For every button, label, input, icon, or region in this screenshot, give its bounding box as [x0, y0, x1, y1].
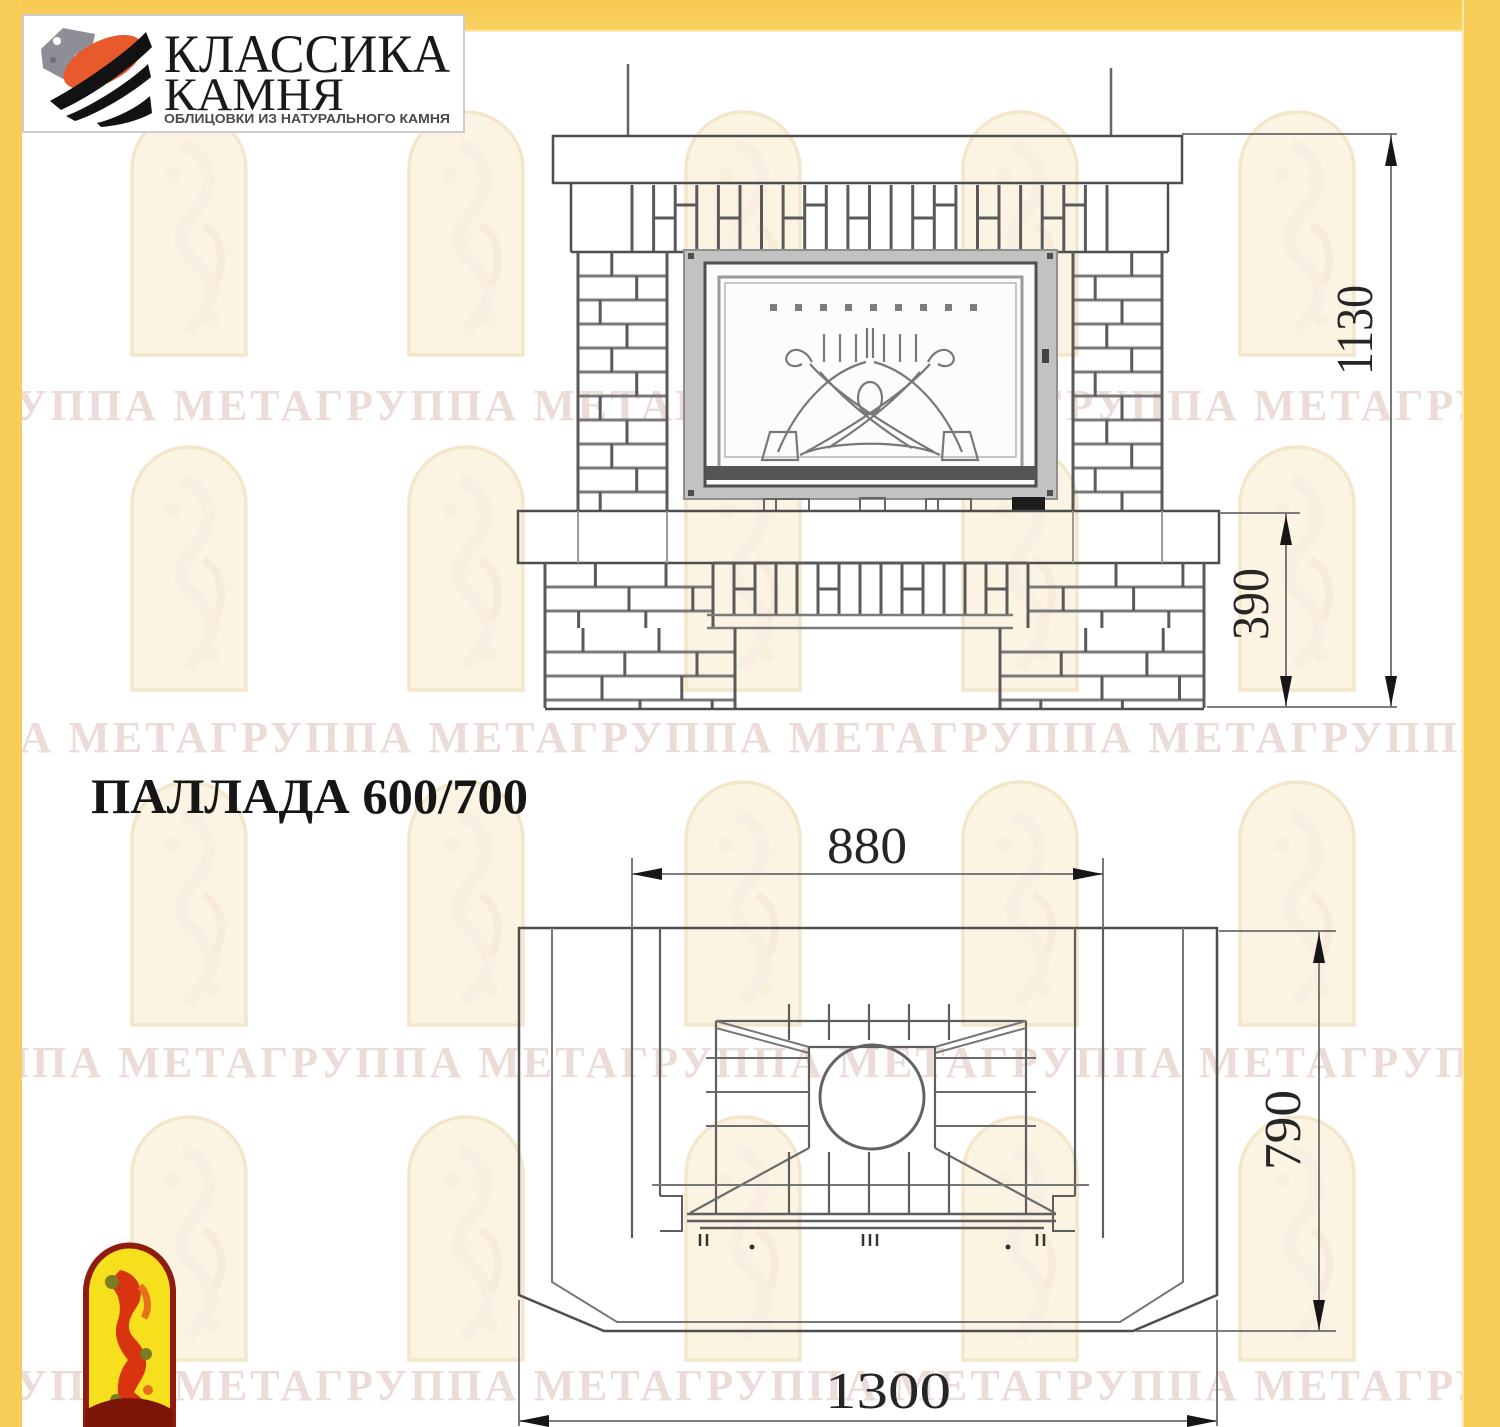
- svg-text:390: 390: [1223, 568, 1280, 640]
- svg-text:790: 790: [1255, 1090, 1312, 1170]
- svg-text:ПАЛЛАДА 600/700: ПАЛЛАДА 600/700: [91, 768, 528, 824]
- svg-text:1130: 1130: [1327, 285, 1384, 375]
- svg-text:880: 880: [827, 818, 907, 875]
- svg-text:1300: 1300: [825, 1363, 951, 1420]
- svg-text:ОБЛИЦОВКИ ИЗ НАТУРАЛЬНОГО КАМН: ОБЛИЦОВКИ ИЗ НАТУРАЛЬНОГО КАМНЯ: [164, 111, 450, 126]
